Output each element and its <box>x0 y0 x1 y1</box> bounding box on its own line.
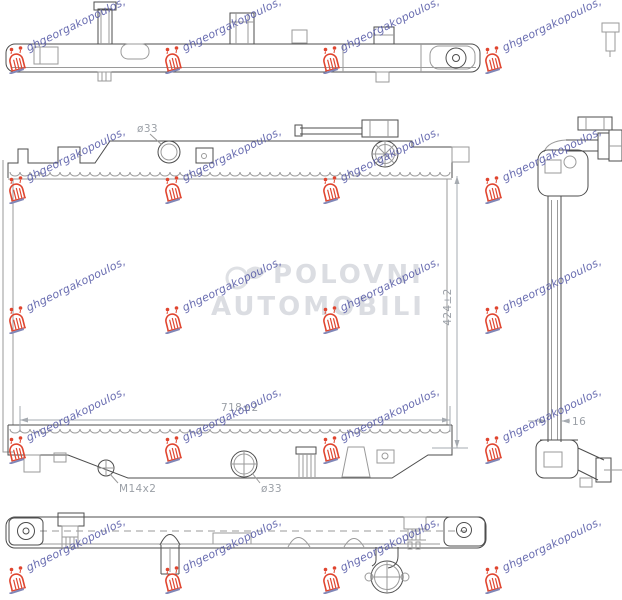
dim-core-height: 424±2 <box>442 288 454 326</box>
dim-core-width: 718±2 <box>221 402 259 414</box>
radiator-drawing-page: POLOVNI AUTOMOBILI <box>0 0 622 600</box>
dim-core-thickness: 16 <box>572 416 586 428</box>
top-view <box>6 2 480 82</box>
front-view: ø33 <box>3 120 469 495</box>
dim-outlet-diameter: ø33 <box>261 483 282 495</box>
radiator-technical-drawing: ø33 <box>0 0 622 600</box>
side-view: 16 <box>528 23 622 487</box>
dim-drain-plug: M14x2 <box>119 483 156 495</box>
dim-top-inlet-diameter: ø33 <box>137 123 158 135</box>
bottom-view <box>6 513 486 593</box>
